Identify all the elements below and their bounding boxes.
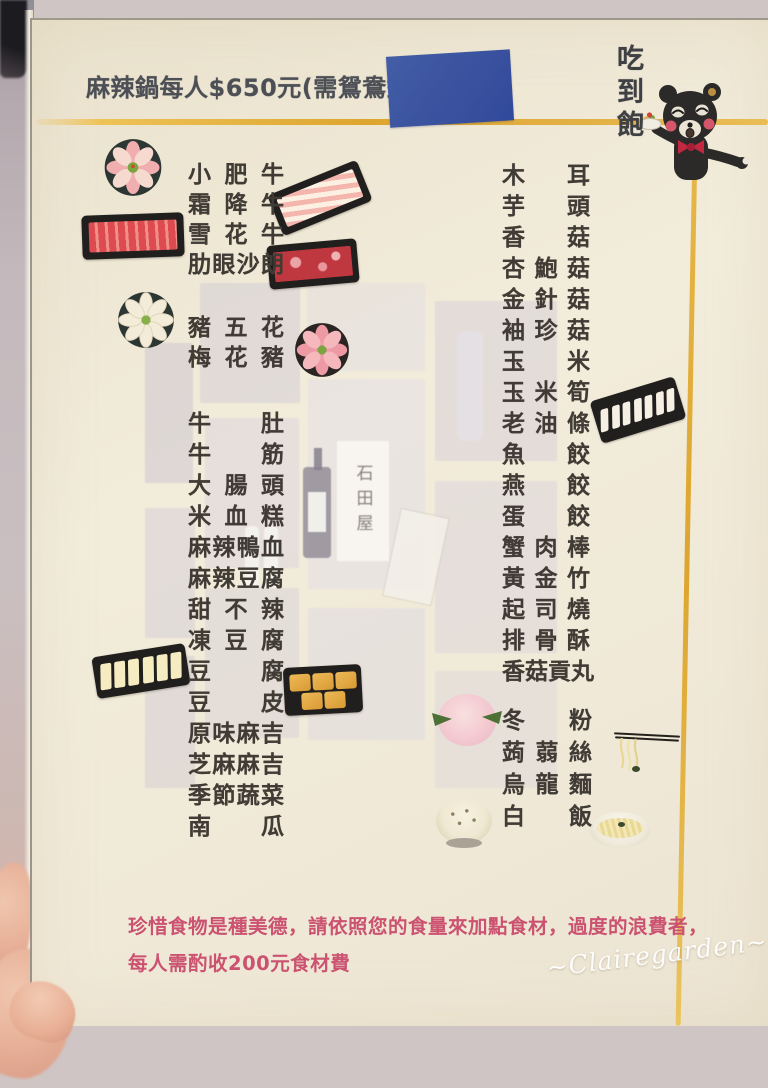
menu-item: 魚餃 bbox=[502, 436, 590, 467]
menu-item: 雪花牛 bbox=[188, 217, 284, 247]
menu-item: 老油條 bbox=[502, 405, 590, 436]
all-you-can-eat-label: 吃到飽 bbox=[608, 44, 647, 143]
rice-bowl-photo bbox=[436, 798, 492, 844]
pork-white-plate-photo bbox=[112, 291, 180, 349]
menu-item: 木耳 bbox=[502, 157, 590, 188]
sake-bottle-backdrop bbox=[303, 448, 333, 558]
menu-item: 牛肚 bbox=[188, 405, 284, 436]
menu-item: 大腸頭 bbox=[188, 467, 284, 498]
note-line-1: 珍惜食物是種美德，請依照您的食量來加點食材，過度的浪費者， bbox=[128, 908, 728, 945]
menu-item: 玉米 bbox=[502, 343, 590, 374]
menu-item: 杏鮑菇 bbox=[502, 250, 590, 281]
menu-item: 燕餃 bbox=[502, 467, 590, 498]
menu-item: 起司燒 bbox=[502, 591, 590, 622]
menu-item: 霜降牛 bbox=[188, 187, 284, 217]
menu-item: 蟹肉棒 bbox=[502, 529, 590, 560]
menu-item: 米血糕 bbox=[188, 498, 284, 529]
menu-list-right-main: 木耳芋頭香菇杏鮑菇金針菇袖珍菇玉米玉米筍老油條魚餃燕餃蛋餃蟹肉棒黃金竹起司燒排骨… bbox=[502, 157, 590, 684]
menu-item: 梅花豬 bbox=[188, 340, 284, 370]
beef-slice-tray-photo bbox=[81, 212, 184, 260]
menu-item: 芝麻麻吉 bbox=[188, 746, 284, 777]
menu-list-pork: 豬五花梅花豬 bbox=[188, 310, 284, 370]
menu-item: 烏龍麵 bbox=[502, 766, 592, 798]
menu-item: 袖珍菇 bbox=[502, 312, 590, 343]
menu-item: 甜不辣 bbox=[188, 591, 284, 622]
menu-item: 南瓜 bbox=[188, 808, 284, 839]
menu-item: 白飯 bbox=[502, 798, 592, 830]
menu-item: 季節蔬菜 bbox=[188, 777, 284, 808]
menu-item: 金針菇 bbox=[502, 281, 590, 312]
menu-item: 原味麻吉 bbox=[188, 715, 284, 746]
menu-item: 小肥牛 bbox=[188, 157, 284, 187]
menu-list-beef: 小肥牛霜降牛雪花牛肋眼沙朗 bbox=[188, 157, 284, 277]
fried-tofu-tray-photo bbox=[283, 664, 363, 716]
menu-list-left-main: 牛肚牛筋大腸頭米血糕麻辣鴨血麻辣豆腐甜不辣凍豆腐豆腐豆皮原味麻吉芝麻麻吉季節蔬菜… bbox=[188, 405, 284, 839]
pork-pink-plate-photo bbox=[290, 322, 354, 378]
menu-item: 排骨酥 bbox=[502, 622, 590, 653]
menu-item: 豆腐 bbox=[188, 653, 284, 684]
beef-roll-plate-photo bbox=[98, 138, 168, 197]
menu-item: 玉米筍 bbox=[502, 374, 590, 405]
menu-item: 凍豆腐 bbox=[188, 622, 284, 653]
menu-item: 豬五花 bbox=[188, 310, 284, 340]
menu-item: 肋眼沙朗 bbox=[188, 247, 284, 277]
menu-item: 麻辣豆腐 bbox=[188, 560, 284, 591]
menu-item: 冬粉 bbox=[502, 702, 592, 734]
menu-item: 豆皮 bbox=[188, 684, 284, 715]
menu-title: 麻辣鍋每人$650元(需鴛鴦鍋+ bbox=[86, 68, 432, 103]
menu-item: 牛筋 bbox=[188, 436, 284, 467]
noodle-strands-icon bbox=[616, 738, 650, 778]
menu-item: 蒟蒻絲 bbox=[502, 734, 592, 766]
mochi-photo bbox=[438, 694, 496, 746]
menu-item: 麻辣鴨血 bbox=[188, 529, 284, 560]
blue-tape-sticker bbox=[386, 49, 514, 127]
menu-item: 香菇 bbox=[502, 219, 590, 250]
noodle-bowl-photo bbox=[590, 812, 650, 848]
menu-item: 蛋餃 bbox=[502, 498, 590, 529]
menu-item: 黃金竹 bbox=[502, 560, 590, 591]
photo-dark-corner bbox=[0, 0, 27, 78]
menu-item: 芋頭 bbox=[502, 188, 590, 219]
sake-label-backdrop: 石田屋 bbox=[337, 441, 389, 561]
menu-list-staples: 冬粉蒟蒻絲烏龍麵白飯 bbox=[502, 702, 592, 830]
menu-item: 香菇貢丸 bbox=[502, 653, 590, 684]
